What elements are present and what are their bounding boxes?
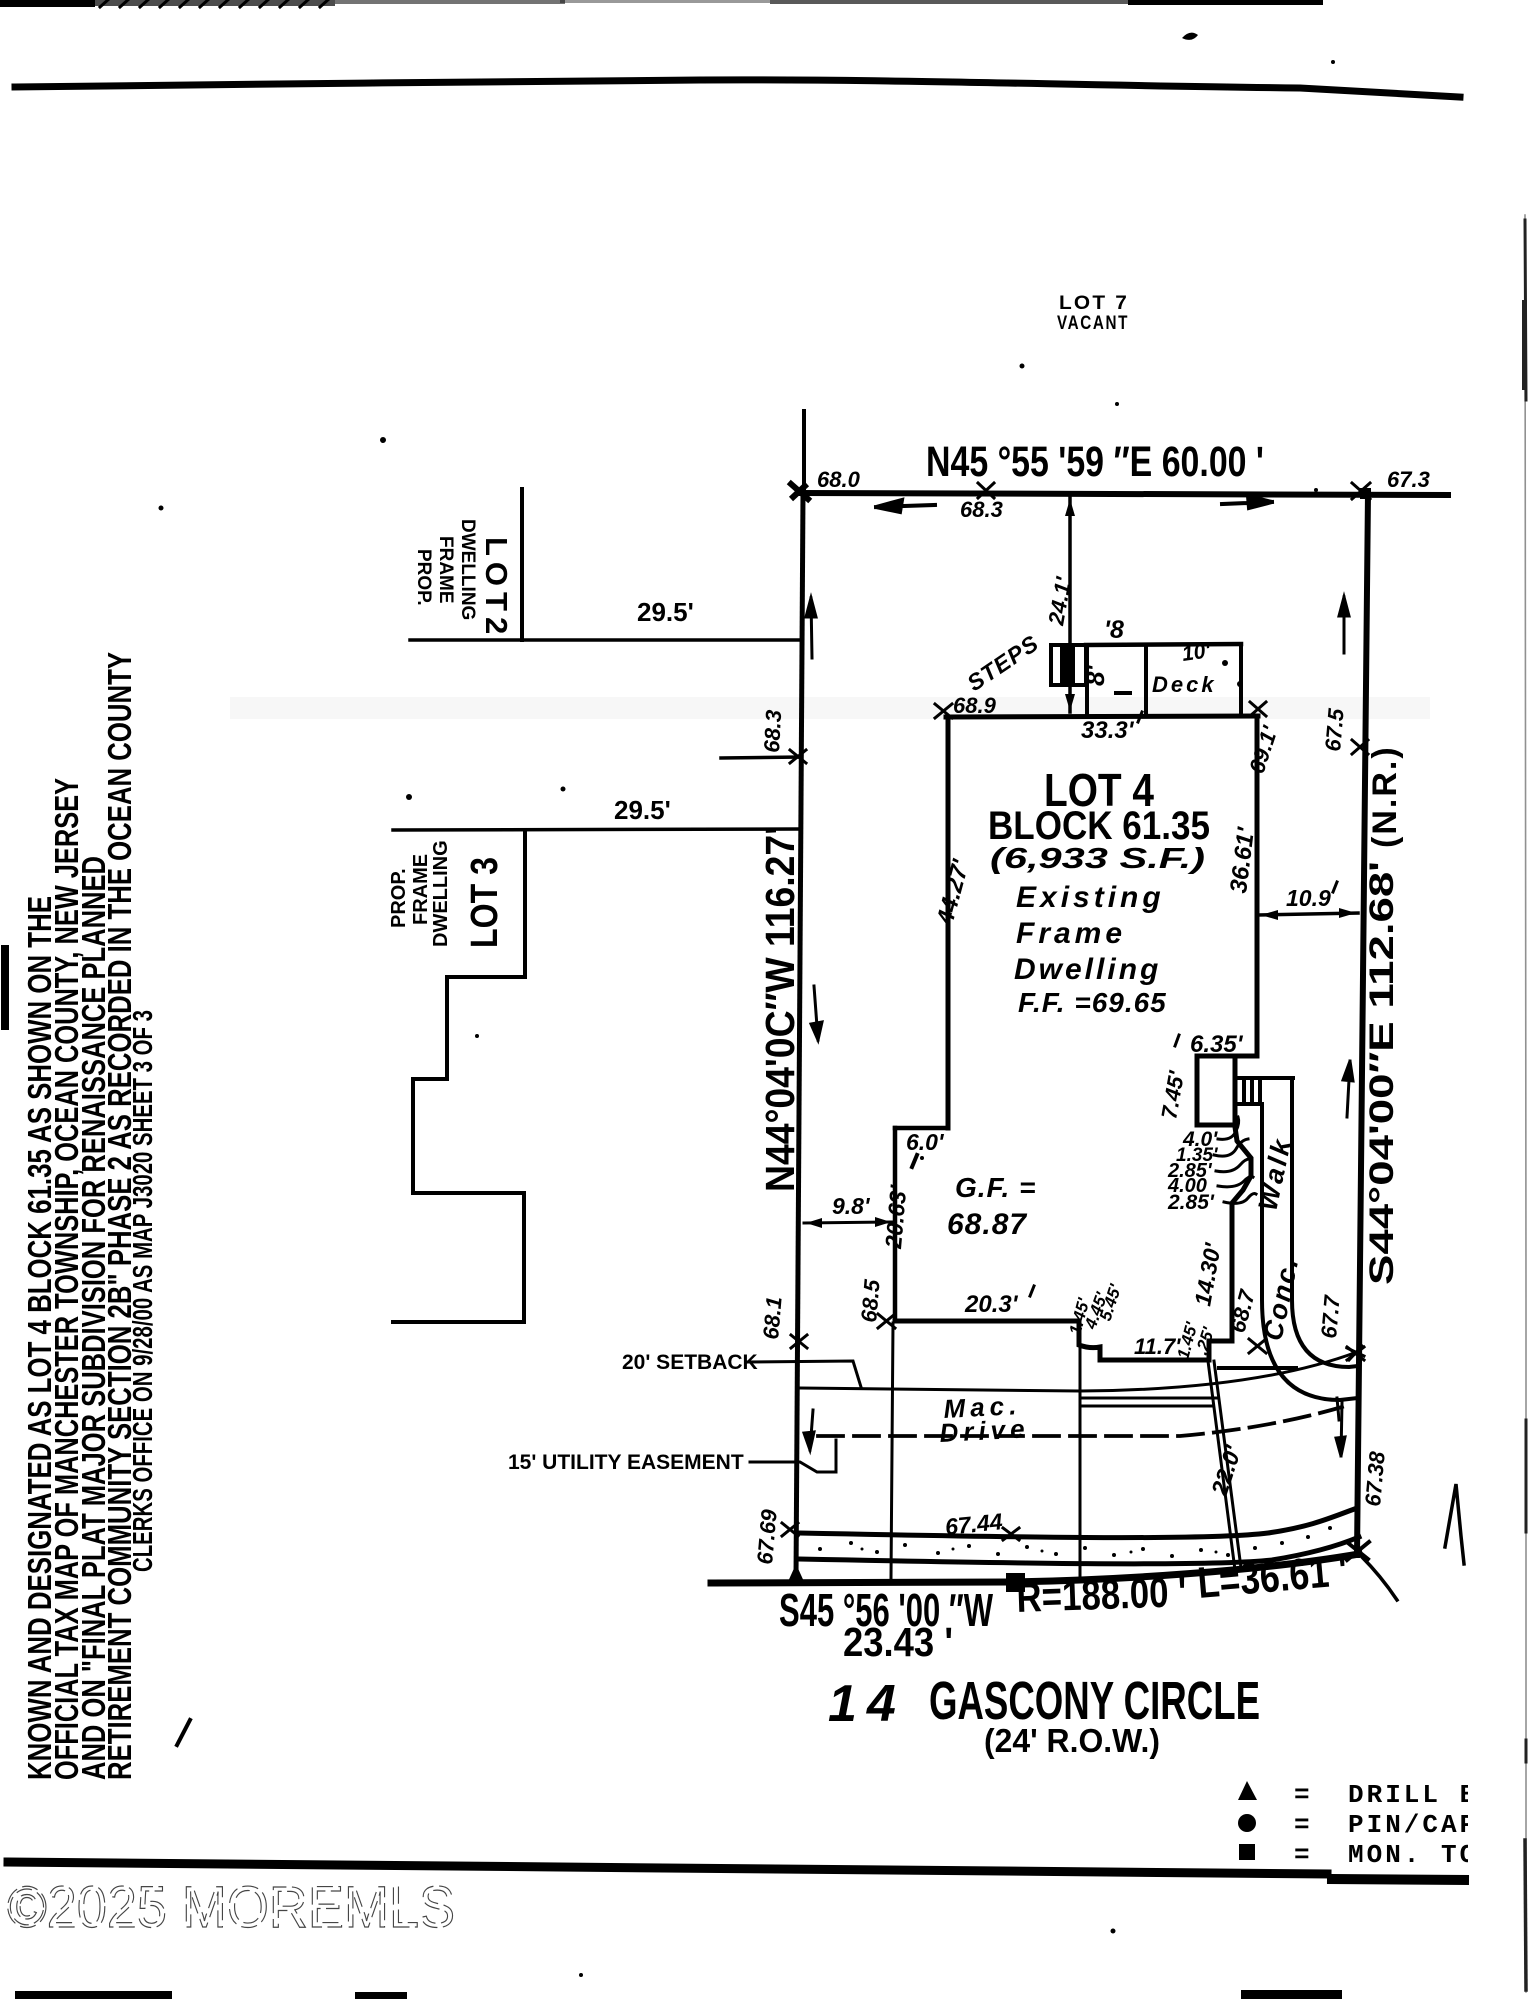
svg-text:23.43 ': 23.43 ' xyxy=(843,1619,953,1665)
svg-text:67.38: 67.38 xyxy=(1360,1450,1390,1508)
svg-text:PIN/CAP: PIN/CAP xyxy=(1348,1810,1478,1840)
svg-text:DRILL B: DRILL B xyxy=(1348,1780,1478,1810)
svg-text:(24' R.O.W.): (24' R.O.W.) xyxy=(984,1722,1160,1759)
svg-text:LOT2: LOT2 xyxy=(479,537,514,640)
svg-text:F.F. =69.65: F.F. =69.65 xyxy=(1018,987,1167,1018)
svg-text:68.1: 68.1 xyxy=(758,1296,787,1341)
svg-text:Existing: Existing xyxy=(1016,881,1165,914)
svg-text:6.0': 6.0' xyxy=(906,1129,945,1155)
svg-text:LOT 3: LOT 3 xyxy=(464,857,506,948)
svg-text:Deck: Deck xyxy=(1152,672,1217,697)
svg-text:R=188.00 ': R=188.00 ' xyxy=(1016,1568,1188,1621)
svg-text:33.3': 33.3' xyxy=(1081,717,1135,744)
svg-text:FRAME: FRAME xyxy=(410,854,432,925)
svg-text:29.5': 29.5' xyxy=(637,597,694,627)
svg-text:FRAME: FRAME xyxy=(435,536,456,604)
svg-text:=: = xyxy=(1294,1840,1310,1870)
svg-text:S44°04'00″E 112.68': S44°04'00″E 112.68' xyxy=(1363,861,1401,1285)
svg-text:15' UTILITY EASEMENT: 15' UTILITY EASEMENT xyxy=(508,1451,744,1474)
svg-text:14: 14 xyxy=(828,1675,906,1733)
svg-text:'8: '8 xyxy=(1104,616,1124,644)
svg-text:DWELLING: DWELLING xyxy=(457,519,478,620)
svg-text:68.0: 68.0 xyxy=(817,467,861,492)
svg-text:(6,933 S.F.): (6,933 S.F.) xyxy=(990,843,1205,875)
svg-text:2.85': 2.85' xyxy=(1167,1191,1215,1214)
svg-text:68.3: 68.3 xyxy=(759,709,786,753)
svg-text:68.3: 68.3 xyxy=(960,497,1003,522)
svg-text:CLERKS OFFICE ON 9/28/00 AS MA: CLERKS OFFICE ON 9/28/00 AS MAP J3020 SH… xyxy=(127,1010,158,1572)
svg-text:=: = xyxy=(1294,1810,1310,1840)
svg-text:Dwelling: Dwelling xyxy=(1014,953,1161,986)
svg-text:PROP.: PROP. xyxy=(413,549,434,606)
svg-text:PROP.: PROP. xyxy=(388,868,410,928)
svg-text:N45 °55 '59 ″E 60.00 ': N45 °55 '59 ″E 60.00 ' xyxy=(926,438,1264,486)
svg-text:68.9: 68.9 xyxy=(953,693,997,718)
svg-text:Drive: Drive xyxy=(939,1413,1030,1448)
svg-text:68.87: 68.87 xyxy=(947,1208,1027,1241)
svg-text:11.7': 11.7' xyxy=(1134,1334,1181,1359)
svg-text:67.7: 67.7 xyxy=(1316,1293,1345,1340)
svg-text:6.35': 6.35' xyxy=(1190,1031,1244,1058)
svg-text:MON. TO: MON. TO xyxy=(1348,1840,1478,1870)
svg-text:BLOCK 61.35: BLOCK 61.35 xyxy=(988,804,1210,848)
svg-text:VACANT: VACANT xyxy=(1057,313,1129,334)
svg-text:29.5': 29.5' xyxy=(614,795,671,825)
svg-text:©2025 MOREMLS: ©2025 MOREMLS xyxy=(7,1875,455,1940)
svg-text:20' SETBACK: 20' SETBACK xyxy=(622,1351,758,1374)
svg-text:=: = xyxy=(1294,1780,1310,1810)
svg-text:LOT 7: LOT 7 xyxy=(1059,293,1129,314)
svg-text:10': 10' xyxy=(1180,639,1212,666)
svg-text:(N.R.): (N.R.) xyxy=(1366,745,1404,848)
svg-text:N44°04'0C″W 116.27': N44°04'0C″W 116.27' xyxy=(757,826,803,1192)
svg-text:8': 8' xyxy=(1080,665,1110,686)
svg-text:67.69: 67.69 xyxy=(752,1508,782,1566)
svg-text:Frame: Frame xyxy=(1016,917,1126,950)
svg-text:9.8': 9.8' xyxy=(832,1193,871,1219)
svg-text:67.3: 67.3 xyxy=(1387,467,1430,492)
svg-text:DWELLING: DWELLING xyxy=(430,840,452,947)
svg-text:G.F. =: G.F. = xyxy=(955,1172,1036,1203)
svg-text:20.3': 20.3' xyxy=(964,1291,1019,1318)
svg-text:67.5: 67.5 xyxy=(1320,707,1349,753)
svg-text:10.9: 10.9 xyxy=(1286,885,1331,911)
